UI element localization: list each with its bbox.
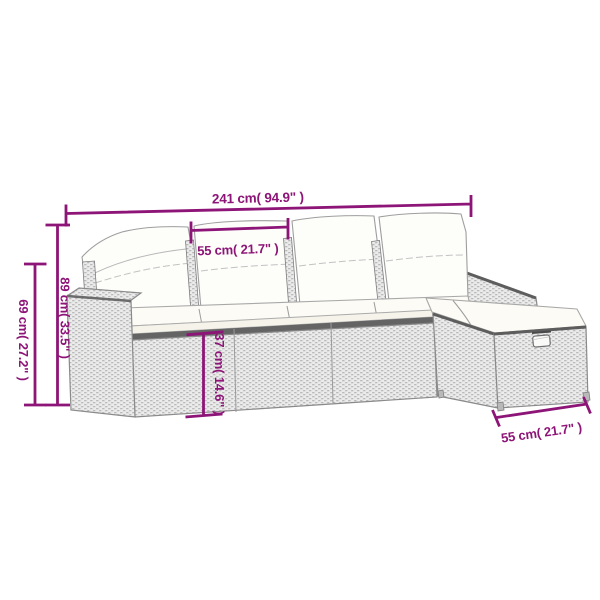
dimension-back-height: 89 cm( 33.5" ) — [46, 225, 73, 405]
overall-width-label: 241 cm( 94.9" ) — [212, 189, 304, 206]
handle-icon — [533, 335, 551, 347]
back-cushion-4 — [379, 213, 468, 301]
sofa-illustration — [67, 213, 590, 417]
product-dimension-diagram: 241 cm( 94.9" ) 55 cm( 21.7" ) 89 cm( 33… — [0, 0, 600, 600]
footstool-foot-left — [497, 402, 504, 411]
back-cushion-3 — [292, 216, 385, 305]
arm-height-label: 69 cm( 27.2" ) — [16, 299, 31, 380]
base-front — [132, 323, 437, 417]
footstool-width-label: 55 cm( 21.7" ) — [500, 419, 583, 445]
seat-height-label: 37 cm( 14.6" ) — [212, 333, 227, 414]
back-height-label: 89 cm( 33.5" ) — [58, 277, 73, 358]
back-cushion-2 — [194, 221, 296, 309]
diagram-canvas: 241 cm( 94.9" ) 55 cm( 21.7" ) 89 cm( 33… — [0, 0, 600, 600]
seat-width-label: 55 cm( 21.7" ) — [197, 241, 279, 259]
footstool-foot-side — [438, 390, 444, 398]
left-armrest-front — [67, 296, 135, 417]
dimension-arm-height: 69 cm( 27.2" ) — [16, 264, 47, 405]
